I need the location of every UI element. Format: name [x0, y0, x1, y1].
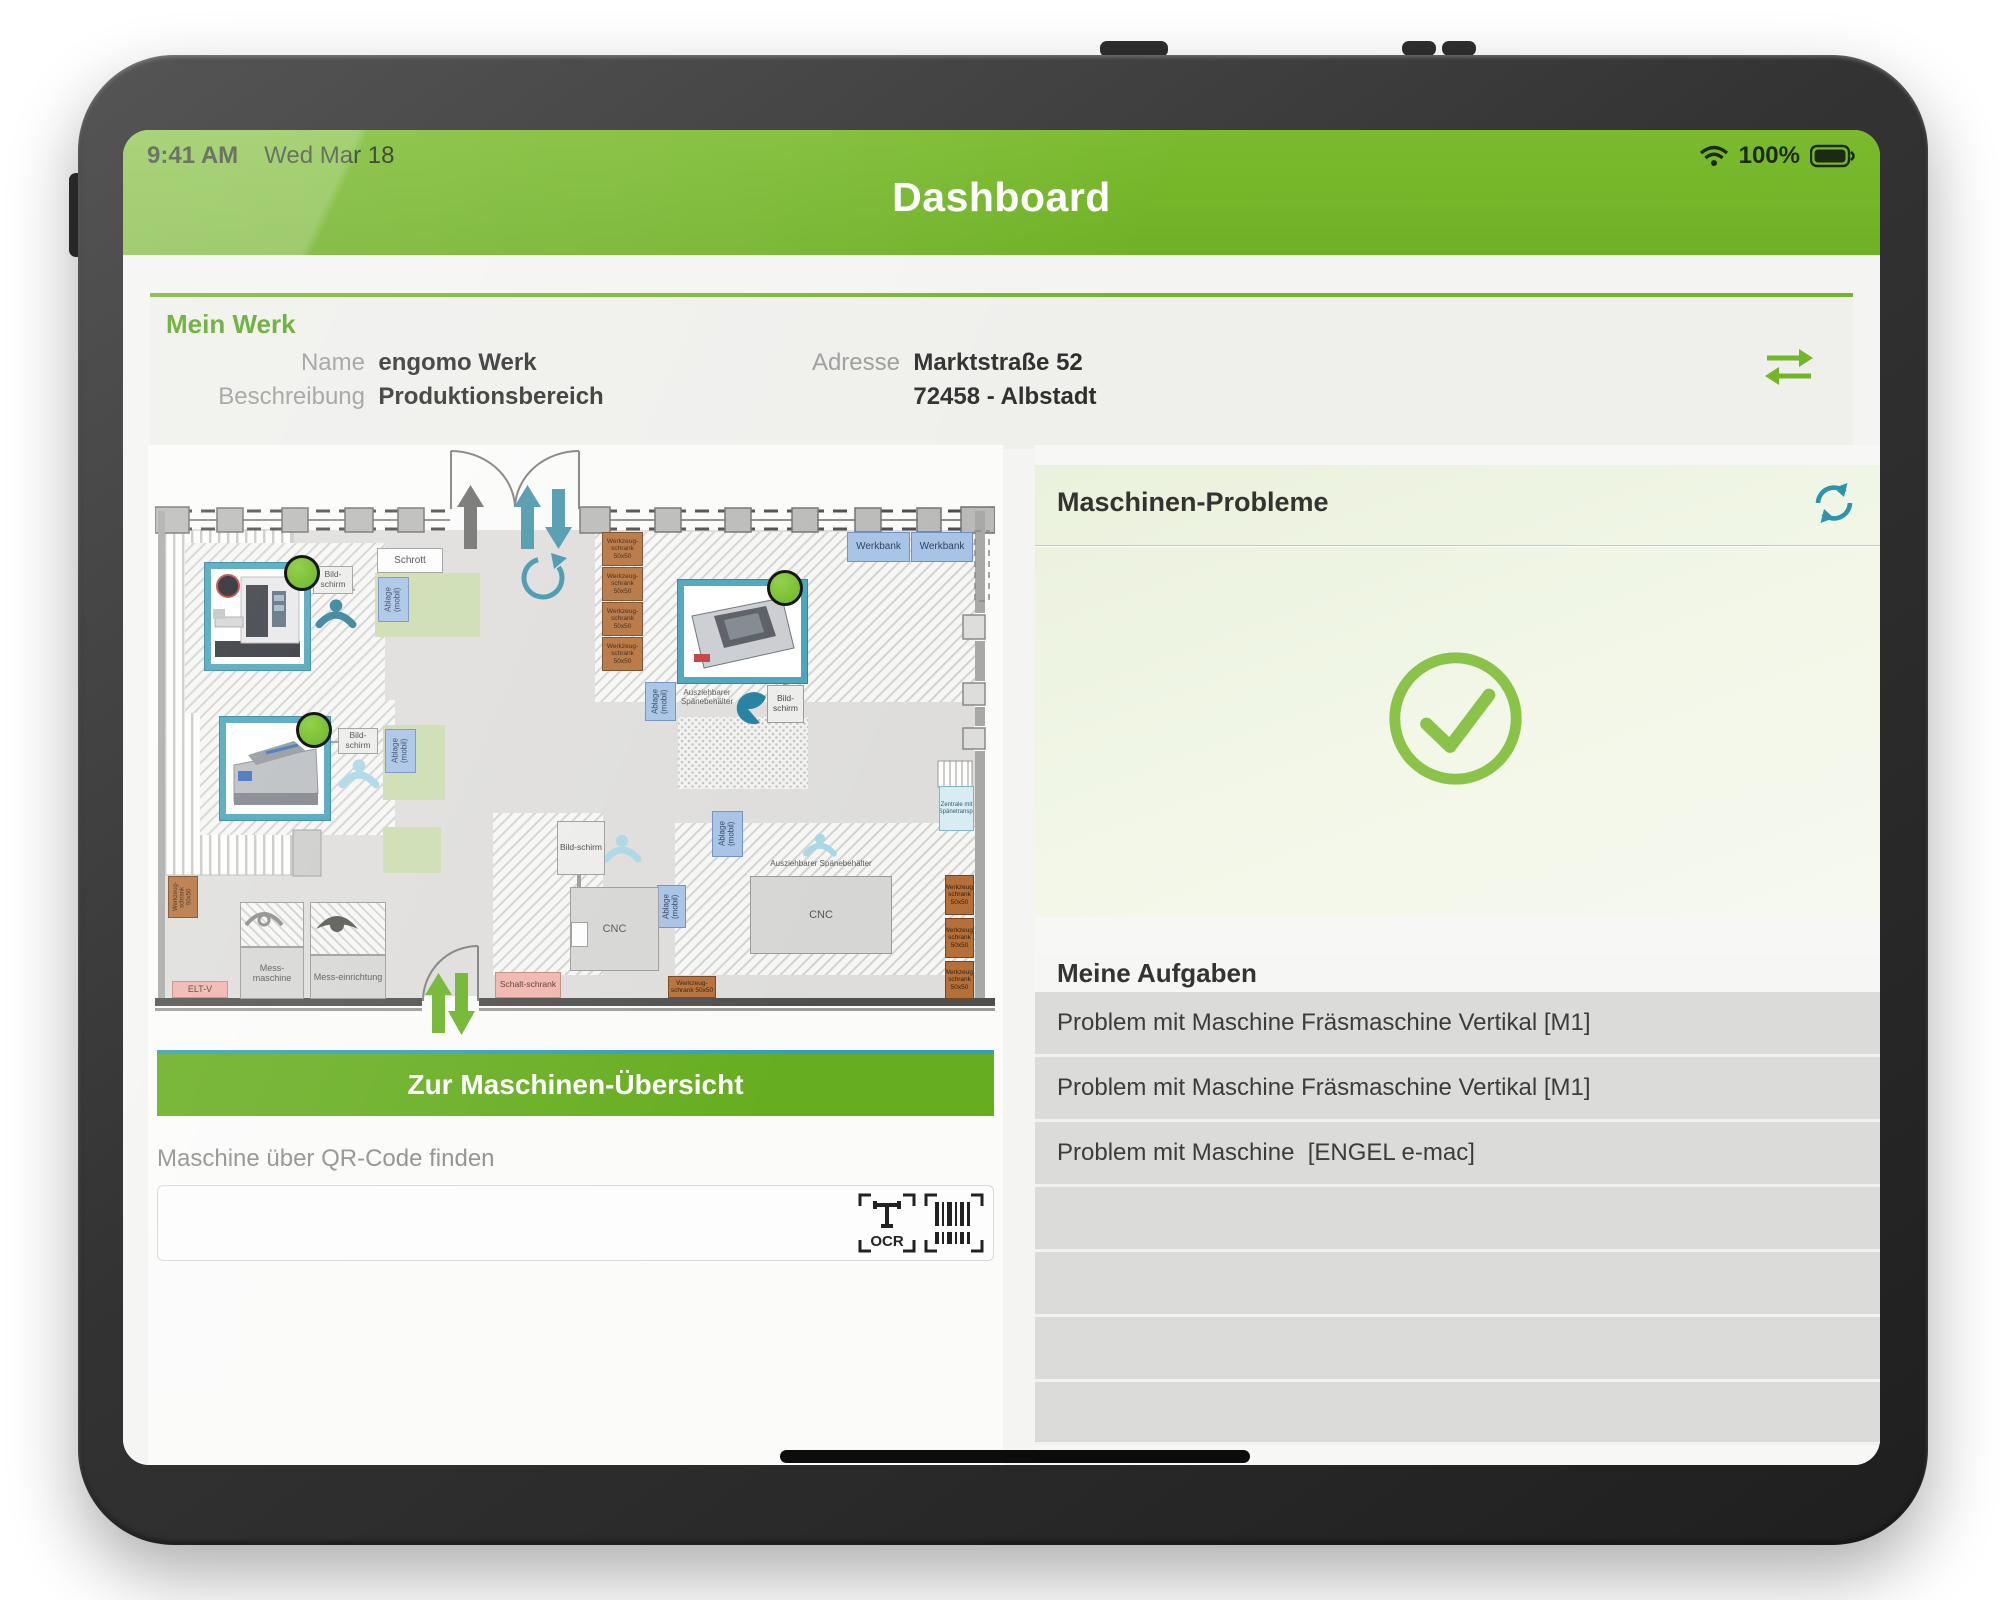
page-title: Dashboard	[123, 174, 1880, 221]
plan-label-werkzeugschrank: Werkzeug-schrank 50x50	[602, 567, 643, 601]
plan-label-spaenebehaelter: Ausziehbarer Spänebehälter	[675, 685, 739, 711]
status-time: 9:41 AM	[147, 142, 238, 170]
qr-input-field: OCR	[157, 1185, 994, 1261]
task-row-empty	[1035, 1252, 1880, 1317]
plan-label-ablage: Ablage (mobil)	[385, 729, 416, 773]
plan-label-werkzeugschrank: Werkzeug-schrank 50x50	[945, 918, 974, 958]
left-pane: Schrott Bild-schirm Bild-schirm Bild-sch…	[148, 445, 1003, 1465]
machine-status-marker-1[interactable]	[284, 555, 320, 591]
task-label: Problem mit Maschine Fräsmaschine Vertik…	[1057, 1074, 1591, 1102]
mess-maschine-icon	[240, 902, 304, 947]
app-header: 9:41 AM Wed Mar 18 100% Dashboard	[123, 130, 1880, 255]
plan-label-werkbank: Werkbank	[847, 532, 910, 562]
plan-label-werkzeugschrank: Werkzeug-schrank 50x50	[945, 961, 974, 999]
mein-werk-card: Mein Werk Name engomo Werk Beschreibung …	[150, 293, 1853, 449]
plan-label-messeinrichtung: Mess-einrichtung	[310, 955, 386, 999]
check-circle-icon	[1383, 646, 1528, 791]
adresse-label: Adresse	[750, 349, 900, 377]
plan-label-schrott: Schrott	[377, 548, 443, 573]
name-label: Name	[150, 349, 365, 377]
task-row-1[interactable]: Problem mit Maschine Fräsmaschine Vertik…	[1035, 992, 1880, 1057]
machine-problems-title: Maschinen-Probleme	[1057, 487, 1329, 518]
qr-code-input[interactable]	[168, 1194, 812, 1252]
tasks-title: Meine Aufgaben	[1057, 958, 1257, 989]
right-pane: Maschinen-Probleme	[1035, 445, 1880, 1465]
machine-status-marker-2[interactable]	[296, 712, 332, 748]
plan-label-schaltschrank: Schalt-schrank	[495, 972, 561, 998]
plan-label-zentrale: Zentrale mit Spänetransp.	[939, 786, 974, 831]
status-bar: 9:41 AM Wed Mar 18 100%	[147, 142, 1856, 170]
plan-label-spaenebehaelter: Ausziehbarer Spänebehälter	[750, 854, 892, 874]
floorplan: Schrott Bild-schirm Bild-schirm Bild-sch…	[155, 445, 995, 1040]
divider	[1035, 545, 1880, 546]
battery-icon	[1810, 144, 1856, 168]
name-value: engomo Werk	[378, 349, 536, 376]
mein-werk-title: Mein Werk	[166, 309, 296, 340]
barcode-scan-icon[interactable]	[923, 1192, 985, 1254]
plan-label-werkbank: Werkbank	[911, 532, 973, 562]
plan-label-cnc: CNC	[750, 876, 892, 954]
task-row-3[interactable]: Problem mit Maschine [ENGEL e-mac]	[1035, 1122, 1880, 1187]
refresh-button[interactable]	[1810, 479, 1858, 527]
volume-down-button[interactable]	[1442, 41, 1476, 56]
plan-cnc-panel	[571, 922, 588, 947]
qr-code-label: Maschine über QR-Code finden	[157, 1145, 495, 1173]
no-problems-indicator	[1383, 646, 1528, 791]
plan-label-werkzeugschrank: Werkzeug-schrank 50x50	[168, 876, 198, 918]
wifi-icon	[1699, 144, 1729, 168]
plan-label-messmaschine: Mess-maschine	[240, 947, 304, 999]
mess-einrichtung-icon	[310, 902, 386, 955]
task-row-empty	[1035, 1382, 1880, 1445]
home-indicator[interactable]	[780, 1450, 1250, 1463]
plan-label-werkzeugschrank: Werkzeug-schrank 50x50	[668, 976, 716, 998]
task-label: Problem mit Maschine Fräsmaschine Vertik…	[1057, 1009, 1591, 1037]
content-area: Mein Werk Name engomo Werk Beschreibung …	[123, 255, 1880, 1465]
adresse-value2: 72458 - Albstadt	[913, 383, 1096, 410]
tasks-header: Meine Aufgaben	[1035, 955, 1880, 992]
plan-label-ablage: Ablage (mobil)	[657, 885, 686, 928]
swap-arrows-icon	[1763, 345, 1815, 389]
app-screen: 9:41 AM Wed Mar 18 100% Dashboard Mei	[123, 130, 1880, 1465]
status-date: Wed Mar 18	[264, 142, 394, 170]
plan-label-bildschirm: Bild-schirm	[767, 685, 804, 723]
adresse-value: Marktstraße 52	[913, 349, 1082, 376]
plan-label-ablage: Ablage (mobil)	[378, 577, 409, 622]
beschreibung-label: Beschreibung	[150, 383, 365, 411]
task-label: Problem mit Maschine [ENGEL e-mac]	[1057, 1139, 1475, 1167]
battery-percent: 100%	[1739, 142, 1800, 170]
plan-label-werkzeugschrank: Werkzeug-schrank 50x50	[602, 532, 643, 566]
volume-up-button[interactable]	[1402, 41, 1436, 56]
plan-label-werkzeugschrank: Werkzeug-schrank 50x50	[602, 602, 643, 636]
plan-label-ablage: Ablage (mobil)	[712, 811, 743, 857]
task-row-empty	[1035, 1317, 1880, 1382]
task-row-empty	[1035, 1187, 1880, 1252]
plan-label-ablage: Ablage (mobil)	[645, 682, 676, 721]
beschreibung-value: Produktionsbereich	[378, 383, 603, 410]
plan-label-bildschirm: Bild-schirm	[557, 821, 605, 875]
plan-label-eltv: ELT-V	[172, 981, 228, 998]
machine-overview-button[interactable]: Zur Maschinen-Übersicht	[157, 1050, 994, 1116]
task-row-2[interactable]: Problem mit Maschine Fräsmaschine Vertik…	[1035, 1057, 1880, 1122]
plan-label-bildschirm: Bild-schirm	[338, 728, 378, 754]
ocr-scan-icon[interactable]: OCR	[857, 1192, 917, 1254]
sync-swap-button[interactable]	[1763, 345, 1815, 391]
machine-problems-panel: Maschinen-Probleme	[1035, 465, 1880, 917]
svg-text:OCR: OCR	[870, 1233, 904, 1250]
tablet-device-frame: 9:41 AM Wed Mar 18 100% Dashboard Mei	[78, 55, 1928, 1545]
plan-label-werkzeugschrank: Werkzeug-schrank 50x50	[945, 875, 974, 915]
plan-label-werkzeugschrank: Werkzeug-schrank 50x50	[602, 637, 643, 671]
machine-status-marker-3[interactable]	[767, 570, 803, 606]
refresh-icon	[1810, 479, 1858, 527]
